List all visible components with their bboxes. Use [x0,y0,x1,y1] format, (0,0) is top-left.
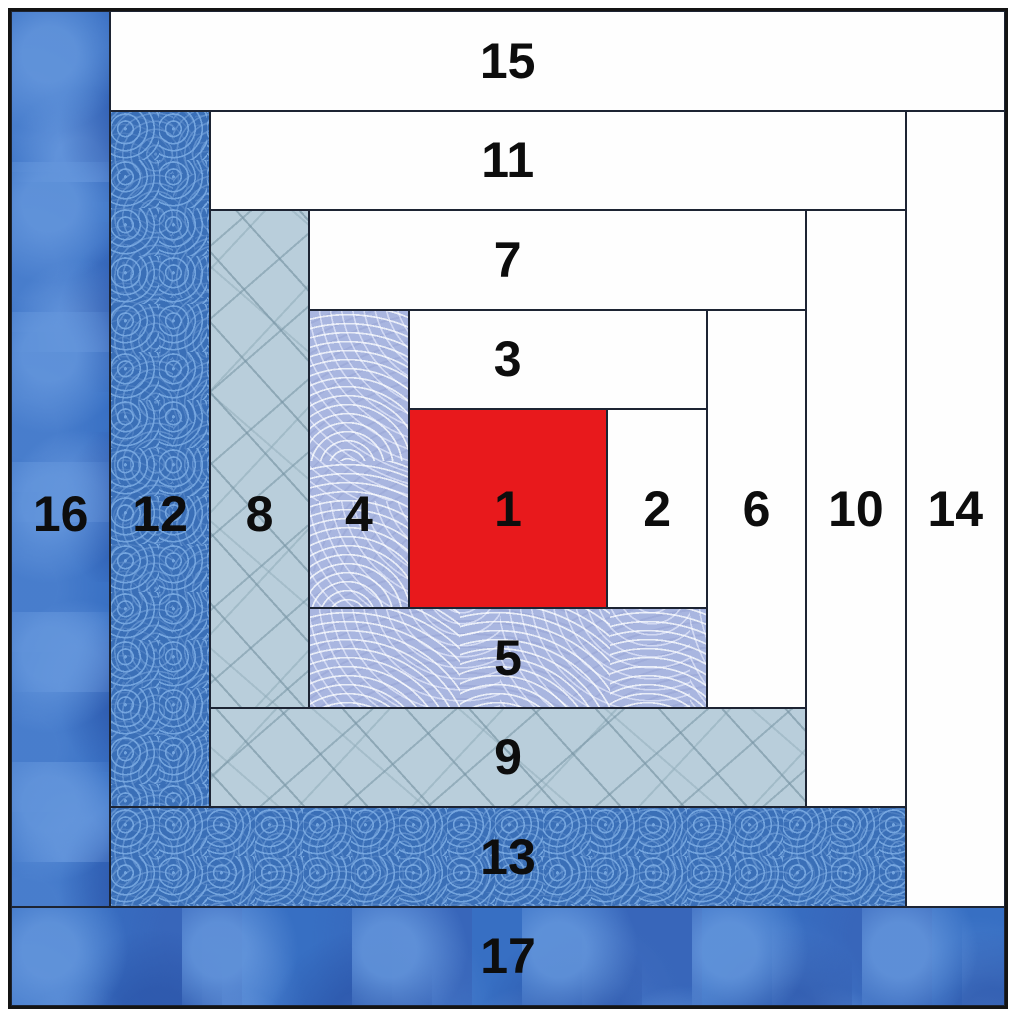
piece-number-label: 16 [33,489,89,539]
piece-number-label: 1 [494,484,522,534]
quilt-piece-17: 17 [11,907,1005,1007]
quilt-piece-14: 14 [906,111,1005,907]
piece-number-label: 11 [481,135,534,185]
piece-number-label: 5 [494,633,522,683]
quilt-piece-8: 8 [210,210,309,708]
piece-number-label: 15 [480,36,536,86]
quilt-piece-6: 6 [707,310,806,708]
quilt-piece-16: 16 [11,11,110,907]
piece-number-label: 4 [345,489,373,539]
piece-number-label: 10 [828,484,884,534]
quilt-piece-13: 13 [110,807,905,907]
quilt-piece-7: 7 [309,210,806,310]
piece-number-label: 2 [643,484,671,534]
quilt-piece-12: 12 [110,111,209,808]
quilt-piece-1: 1 [409,409,608,608]
quilt-piece-5: 5 [309,608,707,708]
quilt-piece-4: 4 [309,310,408,609]
piece-number-label: 7 [494,235,522,285]
quilt-piece-11: 11 [210,111,906,211]
piece-number-label: 8 [246,489,274,539]
piece-number-label: 9 [494,732,522,782]
quilt-piece-9: 9 [210,708,806,808]
log-cabin-quilt-block: 1 2 3 4 5 6 7 8 9 10 11 [8,8,1008,1009]
quilt-piece-15: 15 [110,11,1005,111]
piece-number-label: 6 [743,484,771,534]
piece-number-label: 13 [480,832,536,882]
quilt-piece-3: 3 [409,310,707,410]
piece-number-label: 12 [132,489,188,539]
piece-number-label: 14 [927,484,983,534]
quilt-piece-2: 2 [607,409,706,608]
piece-number-label: 17 [480,931,536,981]
piece-number-label: 3 [494,334,522,384]
quilt-piece-10: 10 [806,210,905,807]
quilt-diagram-canvas: 1 2 3 4 5 6 7 8 9 10 11 [0,0,1024,1024]
